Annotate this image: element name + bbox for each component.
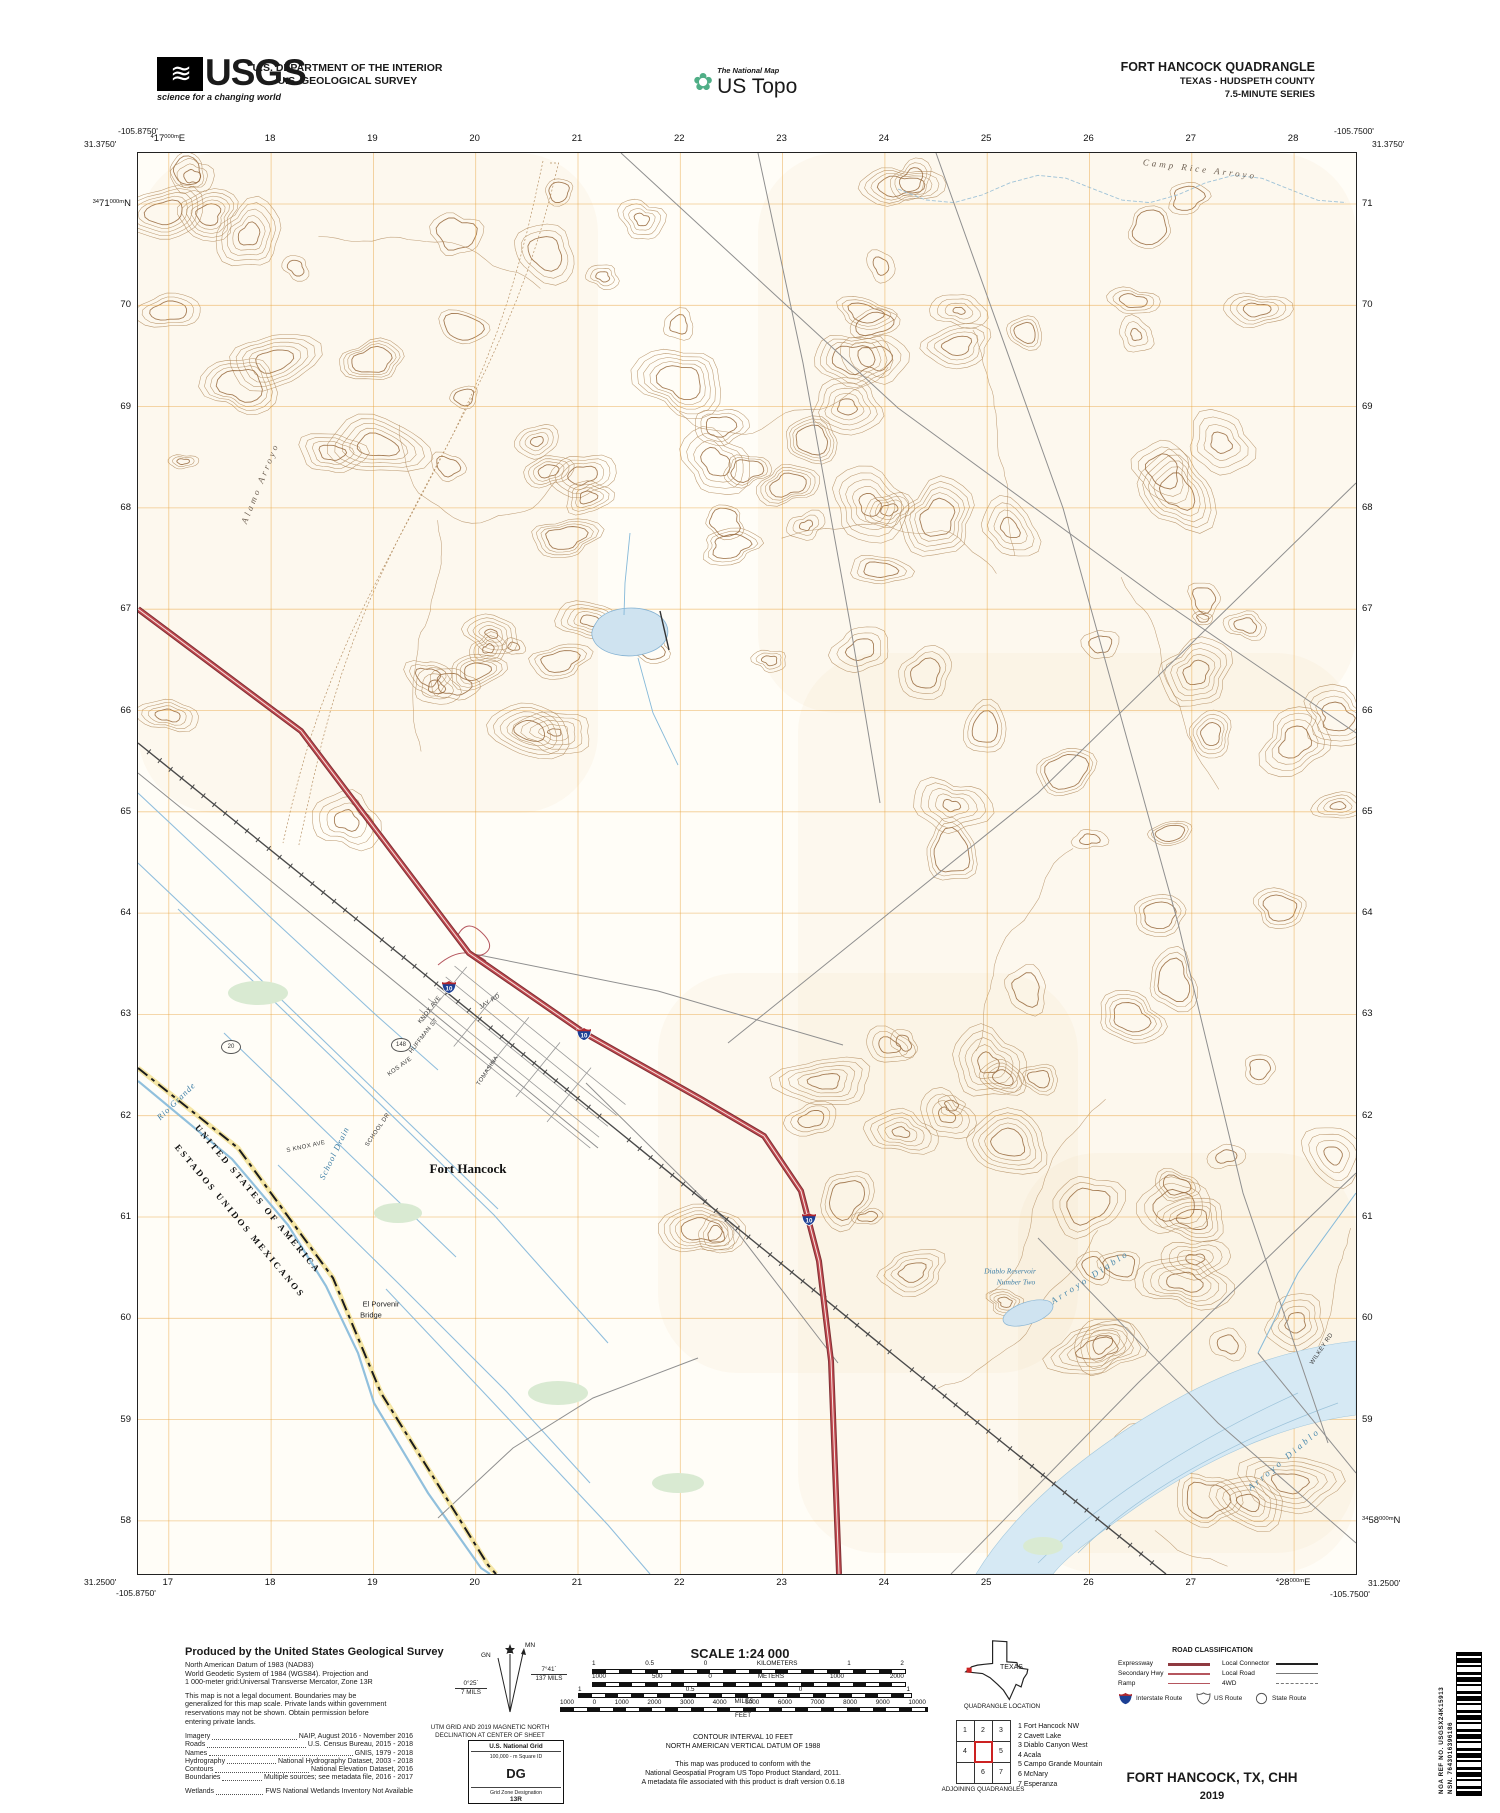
interstate-route-legend: Interstate Route	[1118, 1692, 1182, 1705]
producer-block: Produced by the United States Geological…	[185, 1646, 444, 1797]
adjoining-quadrangle-names: 1 Fort Hancock NW2 Cavett Lake3 Diablo C…	[1018, 1722, 1102, 1789]
international-border	[138, 1068, 496, 1574]
grid-label-northing-right: 3458000mN	[1362, 1515, 1400, 1526]
quadrangle-title-block: FORT HANCOCK QUADRANGLE TEXAS - HUDSPETH…	[1115, 60, 1315, 100]
grid-label-easting-bottom: 27	[1186, 1577, 1197, 1588]
grid-north-label: GN	[481, 1652, 491, 1659]
quadrangle-title: FORT HANCOCK QUADRANGLE	[1115, 60, 1315, 74]
usng-square-id-label: 100,000 - m Square ID	[471, 1754, 561, 1760]
grid-label-easting-bottom: 22	[674, 1577, 685, 1588]
grid-label-easting-top: 18	[265, 133, 276, 144]
grid-label-northing-left: 66	[51, 705, 131, 716]
adjoining-quad-name: 5 Campo Grande Mountain	[1018, 1760, 1102, 1770]
adjoining-cell: 3	[992, 1720, 1011, 1742]
road-class-sample	[1276, 1663, 1318, 1665]
grid-label-northing-left: 61	[51, 1211, 131, 1222]
grid-label-northing-right: 61	[1362, 1211, 1373, 1222]
grid-label-northing-left: 70	[51, 299, 131, 310]
usng-zone: 13R	[471, 1796, 561, 1803]
grid-label-easting-top: 28	[1288, 133, 1299, 144]
adjoining-quad-name: 2 Cavett Lake	[1018, 1732, 1102, 1742]
grid-label-northing-right: 63	[1362, 1008, 1373, 1019]
grid-label-easting-bottom: 19	[367, 1577, 378, 1588]
corner-coord-bottom-right-lon: -105.7500'	[1330, 1589, 1370, 1599]
scale-tick-label: 1	[592, 1660, 596, 1667]
scale-tick-label: 0	[593, 1699, 597, 1706]
grid-label-northing-left: 60	[51, 1312, 131, 1323]
scale-tick-label: 0	[708, 1673, 712, 1680]
quad-location-marker	[967, 1668, 972, 1673]
scale-tick-label: 1000	[560, 1699, 574, 1706]
road-class-sample	[1276, 1683, 1318, 1684]
data-source-row: RoadsU.S. Census Bureau, 2015 - 2018	[185, 1741, 413, 1749]
scale-tick-label: 9000	[876, 1699, 890, 1706]
adjoining-quad-name: 6 McNary	[1018, 1770, 1102, 1780]
grid-label-northing-left: 3471000mN	[51, 198, 131, 209]
scale-tick-label: 4000	[713, 1699, 727, 1706]
grid-label-easting-top: 19	[367, 133, 378, 144]
road-class-label: Local Road	[1222, 1670, 1255, 1677]
road-class-sample	[1276, 1673, 1318, 1674]
scale-bar-labels: 1000010002000300040005000600070008000900…	[560, 1699, 926, 1706]
department-heading: U.S. DEPARTMENT OF THE INTERIOR U.S. GEO…	[240, 62, 455, 88]
grid-label-northing-right: 66	[1362, 705, 1373, 716]
scale-tick-label: 1000	[830, 1673, 844, 1680]
nsn: NSN. 7643016396186	[1447, 1652, 1454, 1794]
adjoining-quad-name: 3 Diablo Canyon West	[1018, 1741, 1102, 1751]
data-source-row: ContoursNational Elevation Dataset, 2016	[185, 1766, 413, 1774]
department-line1: U.S. DEPARTMENT OF THE INTERIOR	[240, 62, 455, 75]
contour-interval-note: CONTOUR INTERVAL 10 FEET NORTH AMERICAN …	[583, 1733, 903, 1751]
usgs-tagline: science for a changing world	[157, 92, 306, 102]
adjoining-quad-name: 1 Fort Hancock NW	[1018, 1722, 1102, 1732]
scale-tick-label: 0.5	[686, 1686, 695, 1693]
grid-label-northing-right: 62	[1362, 1110, 1373, 1121]
scale-tick-label: 0.5	[645, 1660, 654, 1667]
corner-coord-top-left-lat: 31.3750'	[84, 139, 116, 149]
ustopo-label: US Topo	[717, 75, 797, 99]
state-route-marker: 148	[391, 1038, 411, 1052]
scale-unit-word: FEET	[735, 1712, 751, 1719]
grid-label-easting-top: 23	[776, 133, 787, 144]
ustopo-logo: ✿ The National Map US Topo	[693, 66, 797, 99]
scale-tick-label: 5000	[745, 1699, 759, 1706]
grid-label-northing-left: 58	[51, 1515, 131, 1526]
interstate-shield: 10	[441, 980, 457, 994]
usng-title: U.S. National Grid	[471, 1743, 561, 1752]
quadrangle-series: 7.5-MINUTE SERIES	[1115, 89, 1315, 100]
road-class-sample	[1168, 1683, 1210, 1684]
usng-square-id: DG	[471, 1766, 561, 1781]
national-map-icon: ✿	[693, 71, 713, 95]
scale-tick-label: 2	[900, 1660, 904, 1667]
scale-tick-label: 7000	[811, 1699, 825, 1706]
route-legend-label: State Route	[1272, 1695, 1306, 1702]
grid-label-northing-right: 69	[1362, 401, 1373, 412]
scale-tick-label: 1	[578, 1686, 582, 1693]
datum-line: 1 000-meter grid:Universal Transverse Me…	[185, 1678, 444, 1687]
adjoining-cell: 1	[956, 1720, 975, 1742]
grid-label-easting-bottom: 428000mE	[1276, 1577, 1311, 1588]
svg-text:10: 10	[806, 1218, 813, 1225]
svg-text:10: 10	[581, 1033, 588, 1040]
road-class-label: Local Connector	[1222, 1660, 1269, 1667]
grid-label-northing-right: 68	[1362, 502, 1373, 513]
adjoining-cell	[956, 1762, 975, 1784]
usng-zone-label: Grid Zone Designation	[471, 1787, 561, 1796]
data-source-row: BoundariesMultiple sources; see metadata…	[185, 1774, 413, 1782]
producer-title: Produced by the United States Geological…	[185, 1646, 444, 1658]
grid-label-northing-left: 67	[51, 603, 131, 614]
sheet-name: FORT HANCOCK, TX, CHH	[1092, 1770, 1332, 1785]
svg-text:10: 10	[446, 986, 453, 993]
grid-label-northing-right: 70	[1362, 299, 1373, 310]
barcode-bars	[1456, 1652, 1482, 1796]
scale-tick-label: 6000	[778, 1699, 792, 1706]
scale-bar-labels: 10.501	[578, 1686, 910, 1693]
interstate-shield: 10	[576, 1027, 592, 1041]
adjoining-cell: 4	[956, 1741, 975, 1763]
scale-tick-label: METERS	[758, 1673, 784, 1680]
data-source-row: WetlandsFWS National Wetlands Inventory …	[185, 1788, 413, 1796]
us-route-legend: US Route	[1196, 1692, 1242, 1705]
nga-ref: NGA REF NO. USGSX24K15913	[1438, 1652, 1445, 1794]
adjoining-cell: 6	[974, 1762, 993, 1784]
grid-label-northing-right: 71	[1362, 198, 1373, 209]
scale-bar-labels: 10005000METERS10002000	[592, 1673, 904, 1680]
grid-label-northing-left: 62	[51, 1110, 131, 1121]
usgs-wave-icon: ≋	[157, 57, 203, 91]
scale-tick-label: 10000	[908, 1699, 926, 1706]
road-class-label: Ramp	[1118, 1680, 1135, 1687]
department-line2: U.S. GEOLOGICAL SURVEY	[240, 75, 455, 88]
grid-label-easting-top: 22	[674, 133, 685, 144]
grid-label-easting-top: 417000mE	[150, 133, 185, 144]
grid-label-easting-bottom: 24	[879, 1577, 890, 1588]
state-locator: TEXAS	[958, 1640, 1054, 1707]
grid-label-northing-left: 63	[51, 1008, 131, 1019]
grid-label-easting-top: 20	[469, 133, 480, 144]
grid-label-northing-right: 65	[1362, 806, 1373, 817]
data-source-row: HydrographyNational Hydrography Dataset,…	[185, 1758, 413, 1766]
grid-label-easting-bottom: 26	[1083, 1577, 1094, 1588]
data-source-row: ImageryNAIP, August 2016 - November 2016	[185, 1733, 413, 1741]
declination-diagram: MN GN 7°41´ 137 MILS 0°25´ 7 MILS	[455, 1642, 570, 1722]
scale-tick-label: 2000	[647, 1699, 661, 1706]
scale-tick-label: 500	[652, 1673, 663, 1680]
grid-label-easting-top: 24	[879, 133, 890, 144]
road-class-label: Expressway	[1118, 1660, 1153, 1667]
map-area: Camp Rice ArroyoAlamo ArroyoArroyo Diabl…	[137, 152, 1357, 1575]
state-route-marker: 20	[221, 1040, 241, 1054]
state-name: TEXAS	[1000, 1664, 1023, 1671]
map-graphics	[138, 153, 1356, 1574]
data-source-row: NamesGNIS, 1979 - 2018	[185, 1750, 413, 1758]
scale-tick-label: 2000	[890, 1673, 904, 1680]
conformity-note: This map was produced to conform with th…	[583, 1760, 903, 1787]
data-sources-table: ImageryNAIP, August 2016 - November 2016…	[185, 1733, 444, 1796]
grid-declination-value: 0°25´ 7 MILS	[455, 1680, 487, 1696]
corner-coord-top-right-lon: -105.7500'	[1334, 126, 1374, 136]
scale-title: SCALE 1:24 000	[640, 1646, 840, 1661]
grid-label-northing-left: 59	[51, 1414, 131, 1425]
road-classification-title: ROAD CLASSIFICATION	[1135, 1647, 1290, 1654]
adjoining-cell: 7	[992, 1762, 1011, 1784]
adjoining-quad-name: 4 Acala	[1018, 1751, 1102, 1761]
grid-label-northing-left: 64	[51, 907, 131, 918]
corner-coord-top-right-lat: 31.3750'	[1372, 139, 1404, 149]
quadrangle-location-caption: QUADRANGLE LOCATION	[942, 1703, 1062, 1710]
grid-label-easting-bottom: 17	[163, 1577, 174, 1588]
route-legend-label: US Route	[1214, 1695, 1242, 1702]
terrain-tint	[138, 153, 1356, 1573]
grid-label-northing-left: 68	[51, 502, 131, 513]
interstate-shield: 10	[801, 1212, 817, 1226]
declination-caption: UTM GRID AND 2019 MAGNETIC NORTH DECLINA…	[405, 1724, 575, 1740]
magnetic-declination-value: 7°41´ 137 MILS	[531, 1666, 567, 1682]
scale-tick-label: 3000	[680, 1699, 694, 1706]
grid-label-northing-left: 65	[51, 806, 131, 817]
usgs-topo-sheet: ≋ USGS science for a changing world U.S.…	[0, 0, 1500, 1813]
adjoining-cell: 5	[992, 1741, 1011, 1763]
grid-label-easting-bottom: 23	[776, 1577, 787, 1588]
corner-coord-bottom-right-lat: 31.2500'	[1368, 1578, 1400, 1588]
road-class-sample	[1168, 1673, 1210, 1675]
grid-label-easting-bottom: 21	[572, 1577, 583, 1588]
barcode-block: NGA REF NO. USGSX24K15913 NSN. 764301639…	[1438, 1652, 1482, 1796]
grid-label-easting-top: 26	[1083, 133, 1094, 144]
scale-tick-label: 1	[906, 1686, 910, 1693]
scale-tick-label: 0	[799, 1686, 803, 1693]
grid-label-northing-right: 60	[1362, 1312, 1373, 1323]
national-map-label: The National Map	[717, 66, 797, 75]
road-class-sample	[1168, 1663, 1210, 1666]
road-class-label: 4WD	[1222, 1680, 1236, 1687]
scale-tick-label: 1000	[592, 1673, 606, 1680]
adjoining-cell	[974, 1741, 993, 1763]
scale-tick-label: 1000	[615, 1699, 629, 1706]
sheet-year: 2019	[1092, 1790, 1332, 1802]
grid-label-easting-top: 27	[1186, 133, 1197, 144]
corner-coord-bottom-left-lat: 31.2500'	[84, 1577, 116, 1587]
grid-label-easting-bottom: 25	[981, 1577, 992, 1588]
corner-coord-bottom-left-lon: -105.8750'	[116, 1588, 156, 1598]
route-legend-label: Interstate Route	[1136, 1695, 1182, 1702]
adjoining-caption: ADJOINING QUADRANGLES	[927, 1786, 1039, 1793]
state-route-legend: State Route	[1254, 1692, 1306, 1705]
grid-label-easting-top: 25	[981, 133, 992, 144]
quadrangle-subtitle: TEXAS - HUDSPETH COUNTY	[1115, 76, 1315, 87]
scale-tick-label: 1	[847, 1660, 851, 1667]
scale-tick-label: 8000	[843, 1699, 857, 1706]
scale-bar-labels: 10.50KILOMETERS12	[592, 1660, 904, 1667]
adjoining-cell: 2	[974, 1720, 993, 1742]
grid-label-northing-right: 59	[1362, 1414, 1373, 1425]
usng-box: U.S. National Grid 100,000 - m Square ID…	[468, 1740, 564, 1804]
adjoining-quadrangle-grid: 1234567	[956, 1720, 1010, 1783]
grid-label-easting-bottom: 20	[469, 1577, 480, 1588]
grid-label-northing-right: 64	[1362, 907, 1373, 918]
grid-label-easting-top: 21	[572, 133, 583, 144]
grid-label-northing-left: 69	[51, 401, 131, 412]
scale-tick-label: KILOMETERS	[757, 1660, 798, 1667]
magnetic-north-label: MN	[525, 1642, 535, 1649]
grid-label-northing-right: 67	[1362, 603, 1373, 614]
road-class-label: Secondary Hwy	[1118, 1670, 1164, 1677]
grid-label-easting-bottom: 18	[265, 1577, 276, 1588]
scale-tick-label: 0	[704, 1660, 708, 1667]
